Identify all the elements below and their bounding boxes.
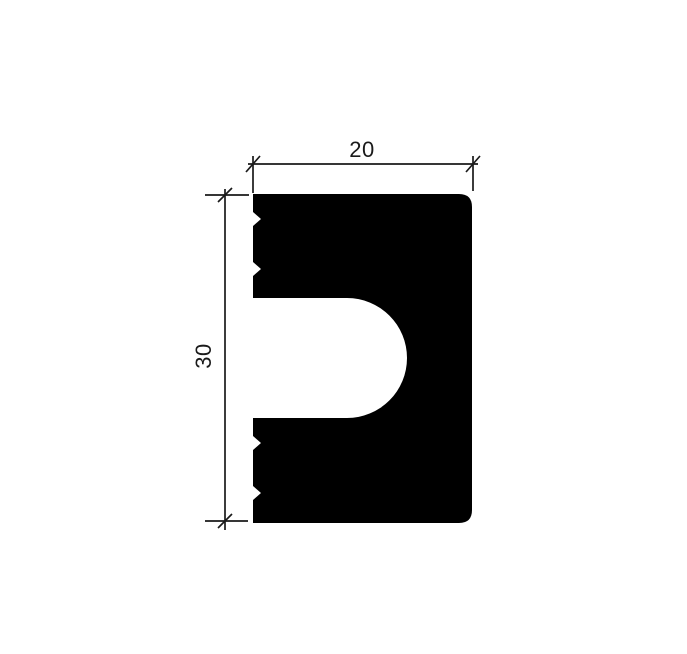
width-dimension-label: 20 bbox=[349, 137, 374, 162]
profile-shape bbox=[253, 194, 472, 523]
height-dimension: 30 bbox=[191, 188, 249, 530]
height-dimension-label: 30 bbox=[191, 343, 216, 368]
technical-drawing: 20 30 bbox=[0, 0, 687, 654]
width-dimension: 20 bbox=[246, 137, 480, 193]
drawing-canvas: 20 30 bbox=[0, 0, 687, 654]
